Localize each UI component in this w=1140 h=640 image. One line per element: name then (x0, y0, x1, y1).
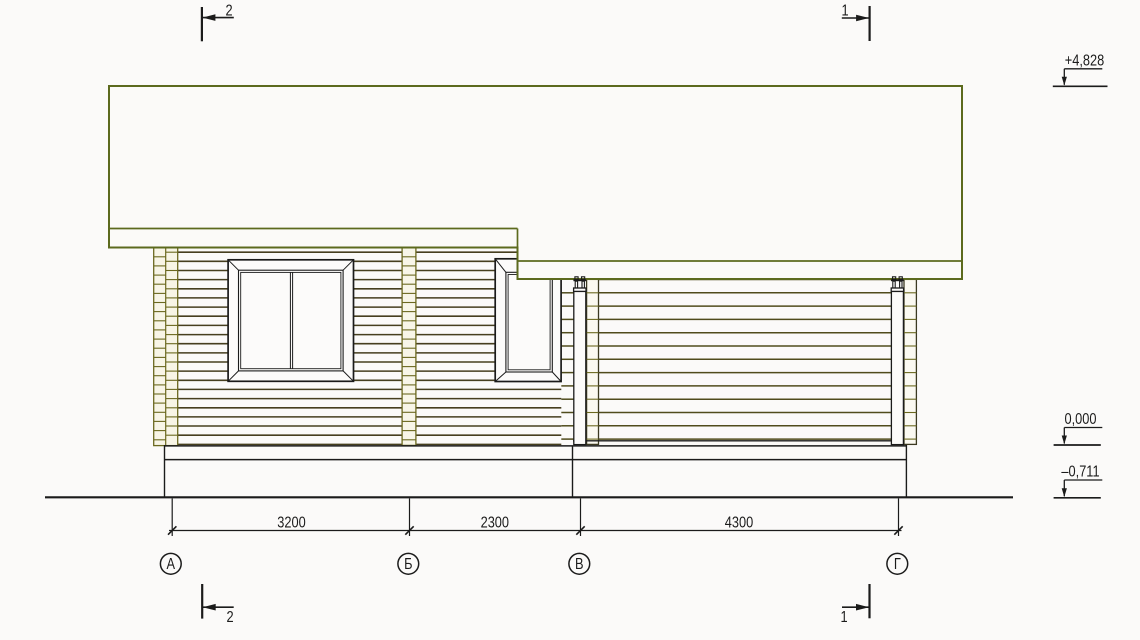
svg-text:–0,711: –0,711 (1061, 463, 1099, 481)
svg-text:Б: Б (404, 556, 412, 574)
svg-text:4300: 4300 (725, 514, 753, 532)
svg-text:+4,828: +4,828 (1065, 52, 1104, 70)
svg-text:В: В (575, 556, 584, 574)
svg-text:2: 2 (226, 609, 233, 627)
svg-text:2: 2 (225, 2, 232, 20)
svg-text:1: 1 (840, 609, 847, 627)
svg-text:3200: 3200 (277, 514, 305, 532)
svg-text:2300: 2300 (481, 514, 509, 532)
svg-text:1: 1 (841, 2, 848, 20)
svg-text:А: А (167, 556, 176, 574)
svg-text:Г: Г (894, 556, 901, 574)
svg-text:0,000: 0,000 (1065, 411, 1097, 429)
